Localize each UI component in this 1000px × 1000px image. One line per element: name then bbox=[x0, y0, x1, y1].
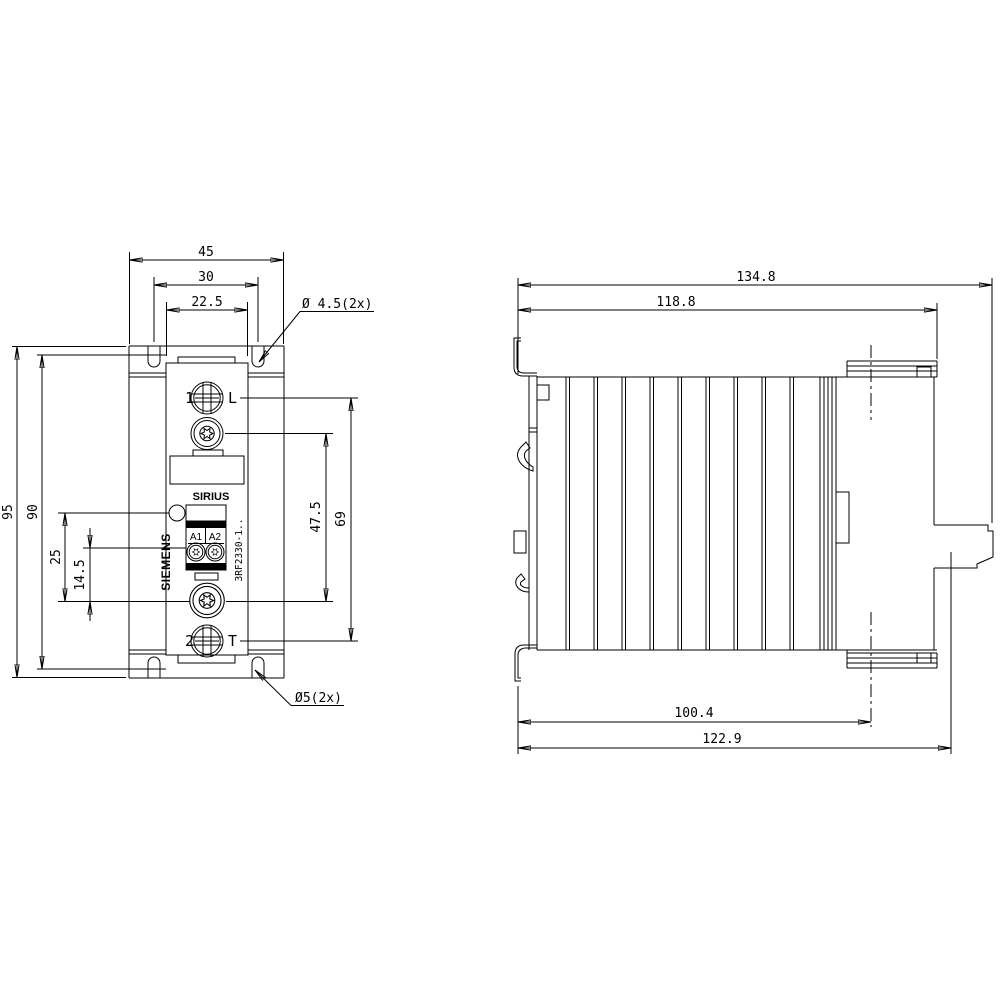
top-flange bbox=[847, 361, 937, 377]
dim-depth-to-hole-center: 100.4 bbox=[674, 706, 713, 721]
brand-label: SIEMENS bbox=[159, 533, 173, 591]
dim-height-total: 95 bbox=[1, 504, 16, 520]
terminal-2-label: 2 bbox=[185, 632, 194, 650]
mounting-slot-top-right bbox=[252, 346, 264, 367]
dim-torx-spacing: 47.5 bbox=[309, 501, 324, 532]
lower-hook bbox=[516, 574, 529, 592]
type-code-label: 3RF2330-1.. bbox=[234, 519, 245, 582]
mounting-slot-bottom-right bbox=[252, 657, 264, 678]
side-view bbox=[514, 338, 993, 727]
heatsink-fins bbox=[566, 377, 832, 650]
dim-bottom-holes: Ø5(2x) bbox=[295, 691, 342, 706]
vent-recess bbox=[170, 450, 244, 484]
upper-hook bbox=[518, 442, 533, 471]
dim-width-slot-centers: 30 bbox=[198, 270, 214, 285]
dim-width-housing: 22.5 bbox=[191, 295, 222, 310]
side-button bbox=[514, 531, 526, 553]
top-mounting-plate bbox=[129, 346, 284, 377]
rear-mid-box bbox=[836, 492, 849, 543]
terminal-screw-2 bbox=[191, 625, 223, 657]
mounting-slot-top-left bbox=[148, 346, 160, 367]
dim-depth-body: 118.8 bbox=[656, 295, 695, 310]
coil-terminal-block: A1 A2 bbox=[186, 505, 226, 580]
status-led bbox=[169, 505, 185, 521]
coil-screw-a2 bbox=[206, 543, 224, 561]
technical-drawing-page: 1 L SIRIUS A1 A2 SIEMENS 3RF2330- bbox=[0, 0, 1000, 1000]
terminal-2-letter: T bbox=[228, 632, 237, 650]
dim-width-total: 45 bbox=[198, 245, 214, 260]
side-dimensions: 134.8 118.8 100.4 122.9 bbox=[518, 270, 992, 754]
dim-terminal-spacing: 69 bbox=[334, 511, 349, 527]
heatsink-body bbox=[537, 377, 937, 650]
dim-coil-to-torx: 14.5 bbox=[73, 559, 88, 590]
load-screw-top bbox=[191, 418, 223, 450]
coil-a1-label: A1 bbox=[190, 532, 203, 543]
dim-led-to-torx: 25 bbox=[49, 549, 64, 565]
dim-depth-with-rail: 122.9 bbox=[702, 732, 741, 747]
terminal-1-letter: L bbox=[228, 389, 237, 407]
product-line-label: SIRIUS bbox=[193, 491, 230, 503]
load-screw-bottom bbox=[190, 583, 225, 618]
front-view: 1 L SIRIUS A1 A2 SIEMENS 3RF2330- bbox=[129, 346, 284, 678]
dim-height-inner: 90 bbox=[26, 504, 41, 520]
bottom-flange bbox=[847, 650, 937, 668]
dim-depth-total: 134.8 bbox=[736, 270, 775, 285]
dim-top-holes: Ø 4.5(2x) bbox=[302, 297, 372, 312]
mounting-slot-bottom-left bbox=[148, 657, 160, 678]
terminal-screw-1 bbox=[191, 382, 223, 414]
front-panel-edge bbox=[514, 338, 549, 681]
din-rail-latch bbox=[934, 525, 993, 568]
coil-screw-a1 bbox=[187, 543, 205, 561]
coil-a2-label: A2 bbox=[209, 532, 222, 543]
terminal-1-label: 1 bbox=[185, 389, 194, 407]
dimension-drawing: 1 L SIRIUS A1 A2 SIEMENS 3RF2330- bbox=[0, 0, 1000, 1000]
